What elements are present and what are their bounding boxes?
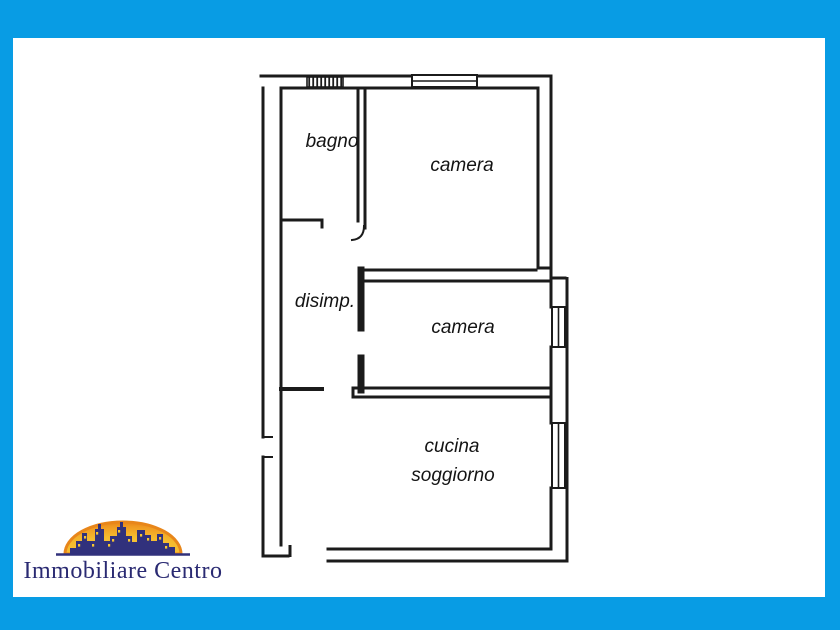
wall-opening-ticks [263, 437, 272, 457]
room-label-camera-top: camera [430, 155, 493, 176]
window-camera-mid [552, 307, 565, 347]
room-label-cucina: cucina [425, 436, 480, 457]
window-hatched-bagno [307, 77, 343, 87]
window-soggiorno [552, 423, 565, 488]
floor-plan-drawing: bagno camera disimp. camera cucina soggi… [0, 0, 840, 630]
agency-logo: Immobiliare Centro [24, 522, 223, 584]
agency-name: Immobiliare Centro [24, 558, 223, 584]
room-labels: bagno camera disimp. camera cucina soggi… [295, 131, 495, 486]
listing-image: bagno camera disimp. camera cucina soggi… [0, 0, 840, 630]
room-label-disimp: disimp. [295, 291, 355, 312]
wall-camera-top-right [538, 88, 551, 268]
room-label-camera-mid: camera [431, 317, 494, 338]
window-camera-top [412, 75, 477, 87]
room-label-bagno: bagno [306, 131, 359, 152]
door-swing-bagno [352, 226, 364, 240]
wall-outer-left-lower [263, 457, 290, 556]
room-label-soggiorno: soggiorno [411, 465, 494, 486]
wall-bagno-bottom [281, 220, 322, 227]
wall-cucina-top [353, 388, 551, 397]
